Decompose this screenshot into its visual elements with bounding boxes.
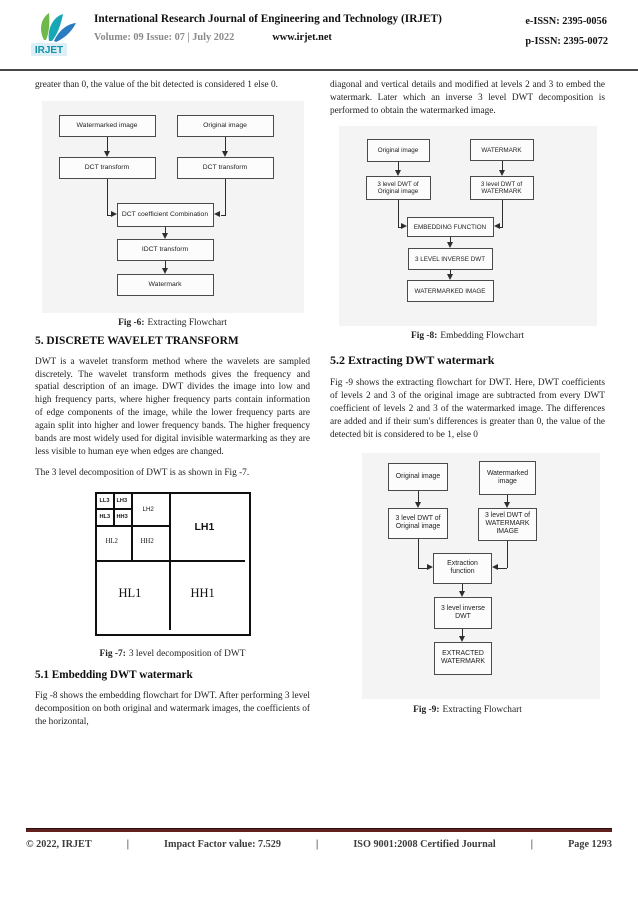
arrow-down-icon bbox=[415, 502, 421, 508]
fig8-flowchart: Original image WATERMARK 3 level DWT of … bbox=[339, 126, 597, 326]
section-5-2-heading: 5.2 Extracting DWT watermark bbox=[330, 353, 605, 368]
paragraph-top-right: diagonal and vertical details and modifi… bbox=[330, 79, 605, 117]
footer-page-number: Page 1293 bbox=[568, 839, 612, 850]
grid-line bbox=[131, 494, 133, 560]
fig7-caption: Fig -7:3 level decomposition of DWT bbox=[35, 649, 310, 659]
footer-separator: | bbox=[531, 839, 533, 850]
irjet-logo-graphic: IRJET bbox=[28, 10, 82, 58]
section-5-2-paragraph: Fig -9 shows the extracting flowchart fo… bbox=[330, 377, 605, 441]
left-column: greater than 0, the value of the bit det… bbox=[35, 79, 310, 738]
arrow-down-icon bbox=[447, 242, 453, 248]
fig6-caption-label: Fig -6: bbox=[118, 318, 144, 328]
connector-line bbox=[498, 568, 507, 569]
footer-divider bbox=[26, 828, 612, 832]
irjet-logo: IRJET bbox=[28, 10, 84, 63]
header-subline: Volume: 09 Issue: 07 | July 2022 www.irj… bbox=[94, 32, 525, 43]
arrow-down-icon bbox=[459, 636, 465, 642]
journal-title: International Research Journal of Engine… bbox=[94, 12, 525, 27]
paper-page: IRJET International Research Journal of … bbox=[0, 0, 638, 902]
flowchart-box-original-image: Original image bbox=[177, 115, 274, 137]
arrow-down-icon bbox=[395, 170, 401, 176]
journal-header: IRJET International Research Journal of … bbox=[0, 0, 638, 71]
fig6-flowchart: Watermarked image Original image DCT tra… bbox=[42, 101, 304, 313]
header-titles: International Research Journal of Engine… bbox=[94, 10, 525, 43]
arrow-down-icon bbox=[499, 170, 505, 176]
paragraph-intro: greater than 0, the value of the bit det… bbox=[35, 79, 310, 92]
grid-line bbox=[97, 525, 169, 527]
arrow-right-icon bbox=[111, 211, 117, 217]
flowchart-box-dwt-original: 3 level DWT of Original image bbox=[388, 508, 448, 539]
connector-line bbox=[418, 568, 427, 569]
section-5-heading: 5. DISCRETE WAVELET TRANSFORM bbox=[35, 335, 310, 347]
arrow-left-icon bbox=[494, 223, 500, 229]
flowchart-box-dwt-watermark: 3 level DWT of WATERMARK IMAGE bbox=[478, 508, 537, 541]
label-lh3: LH3 bbox=[117, 498, 128, 504]
label-hh1: HH1 bbox=[191, 586, 215, 601]
paper-body: greater than 0, the value of the bit det… bbox=[0, 71, 638, 738]
footer-separator: | bbox=[127, 839, 129, 850]
section-5-paragraph: DWT is a wavelet transform method where … bbox=[35, 356, 310, 459]
fig8-caption-label: Fig -8: bbox=[411, 331, 437, 341]
arrow-left-icon bbox=[214, 211, 220, 217]
arrow-down-icon bbox=[104, 151, 110, 157]
fig9-caption-label: Fig -9: bbox=[413, 705, 439, 715]
fig8-caption: Fig -8:Embedding Flowchart bbox=[330, 331, 605, 341]
footer-separator: | bbox=[316, 839, 318, 850]
volume-issue: Volume: 09 Issue: 07 | July 2022 bbox=[94, 32, 234, 43]
website-link[interactable]: www.irjet.net bbox=[272, 32, 331, 43]
label-hl3: HL3 bbox=[100, 514, 111, 520]
flowchart-box-watermark: Watermark bbox=[117, 274, 214, 296]
label-ll3: LL3 bbox=[100, 498, 110, 504]
flowchart-box-idct: IDCT transform bbox=[117, 239, 214, 261]
arrow-down-icon bbox=[222, 151, 228, 157]
label-lh1: LH1 bbox=[195, 521, 215, 533]
connector-line bbox=[107, 179, 108, 215]
arrow-left-icon bbox=[492, 564, 498, 570]
fig6-caption: Fig -6:Extracting Flowchart bbox=[35, 318, 310, 328]
fig7-decomposition-diagram: LL3 LH3 HL3 HH3 LH2 HL2 HH2 LH1 HL1 HH1 bbox=[95, 492, 251, 636]
fig9-flowchart: Original image Watermarked image 3 level… bbox=[362, 453, 600, 699]
flowchart-box-embedding-function: EMBEDDING FUNCTION bbox=[407, 217, 494, 237]
fig8-caption-text: Embedding Flowchart bbox=[440, 331, 524, 341]
label-hh3: HH3 bbox=[117, 514, 128, 520]
flowchart-box-watermarked-image: WATERMARKED IMAGE bbox=[407, 280, 494, 302]
connector-line bbox=[418, 539, 419, 568]
flowchart-box-inverse-dwt: 3 level inverse DWT bbox=[434, 597, 492, 629]
flowchart-box-extracted-watermark: EXTRACTED WATERMARK bbox=[434, 642, 492, 675]
flowchart-box-watermark: WATERMARK bbox=[470, 139, 534, 161]
page-footer: © 2022, IRJET | Impact Factor value: 7.5… bbox=[0, 828, 638, 850]
grid-line bbox=[97, 560, 245, 562]
issn-block: e-ISSN: 2395-0056 p-ISSN: 2395-0072 bbox=[525, 10, 608, 51]
connector-line bbox=[502, 200, 503, 227]
connector-line bbox=[398, 200, 399, 227]
connector-line bbox=[225, 179, 226, 215]
footer-copyright: © 2022, IRJET bbox=[26, 839, 92, 850]
label-hl1: HL1 bbox=[119, 586, 142, 601]
right-column: diagonal and vertical details and modifi… bbox=[330, 79, 605, 738]
footer-text-row: © 2022, IRJET | Impact Factor value: 7.5… bbox=[26, 839, 612, 850]
flowchart-box-watermarked-image: Watermarked image bbox=[59, 115, 156, 137]
fig9-caption: Fig -9:Extracting Flowchart bbox=[330, 705, 605, 715]
grid-line bbox=[169, 494, 171, 630]
flowchart-box-combination: DCT coefficient Combination bbox=[117, 203, 214, 227]
label-hh2: HH2 bbox=[141, 538, 154, 545]
p-issn: p-ISSN: 2395-0072 bbox=[525, 32, 608, 52]
fig9-caption-text: Extracting Flowchart bbox=[442, 705, 521, 715]
grid-line bbox=[113, 494, 115, 525]
flowchart-box-extraction-function: Extraction function bbox=[433, 553, 492, 584]
connector-line bbox=[107, 137, 108, 151]
fig6-caption-text: Extracting Flowchart bbox=[147, 318, 226, 328]
arrow-right-icon bbox=[427, 564, 433, 570]
flowchart-box-inverse-dwt: 3 LEVEL INVERSE DWT bbox=[408, 248, 493, 270]
section-5-1-paragraph: Fig -8 shows the embedding flowchart for… bbox=[35, 690, 310, 728]
label-hl2: HL2 bbox=[106, 538, 118, 545]
label-lh2: LH2 bbox=[143, 506, 154, 513]
flowchart-box-watermarked-image: Watermarked image bbox=[479, 461, 536, 495]
footer-iso: ISO 9001:2008 Certified Journal bbox=[353, 839, 495, 850]
flowchart-box-dwt-watermark: 3 level DWT of WATERMARK bbox=[470, 176, 534, 200]
arrow-down-icon bbox=[162, 233, 168, 239]
flowchart-box-original-image: Original image bbox=[367, 139, 430, 162]
arrow-down-icon bbox=[504, 502, 510, 508]
connector-line bbox=[500, 227, 503, 228]
fig7-intro-text: The 3 level decomposition of DWT is as s… bbox=[35, 467, 310, 480]
flowchart-box-dwt-original: 3 level DWT of Original image bbox=[366, 176, 431, 200]
connector-line bbox=[225, 137, 226, 151]
arrow-down-icon bbox=[162, 268, 168, 274]
fig7-caption-text: 3 level decomposition of DWT bbox=[129, 649, 246, 659]
arrow-down-icon bbox=[459, 591, 465, 597]
footer-impact-factor: Impact Factor value: 7.529 bbox=[164, 839, 281, 850]
arrow-down-icon bbox=[447, 274, 453, 280]
arrow-right-icon bbox=[401, 223, 407, 229]
flowchart-box-original-image: Original image bbox=[388, 463, 448, 491]
e-issn: e-ISSN: 2395-0056 bbox=[525, 12, 608, 32]
connector-line bbox=[507, 541, 508, 568]
flowchart-box-dct-right: DCT transform bbox=[177, 157, 274, 179]
connector-line bbox=[221, 215, 226, 216]
fig7-caption-label: Fig -7: bbox=[100, 649, 126, 659]
section-5-1-heading: 5.1 Embedding DWT watermark bbox=[35, 669, 310, 681]
logo-text: IRJET bbox=[35, 45, 63, 56]
flowchart-box-dct-left: DCT transform bbox=[59, 157, 156, 179]
